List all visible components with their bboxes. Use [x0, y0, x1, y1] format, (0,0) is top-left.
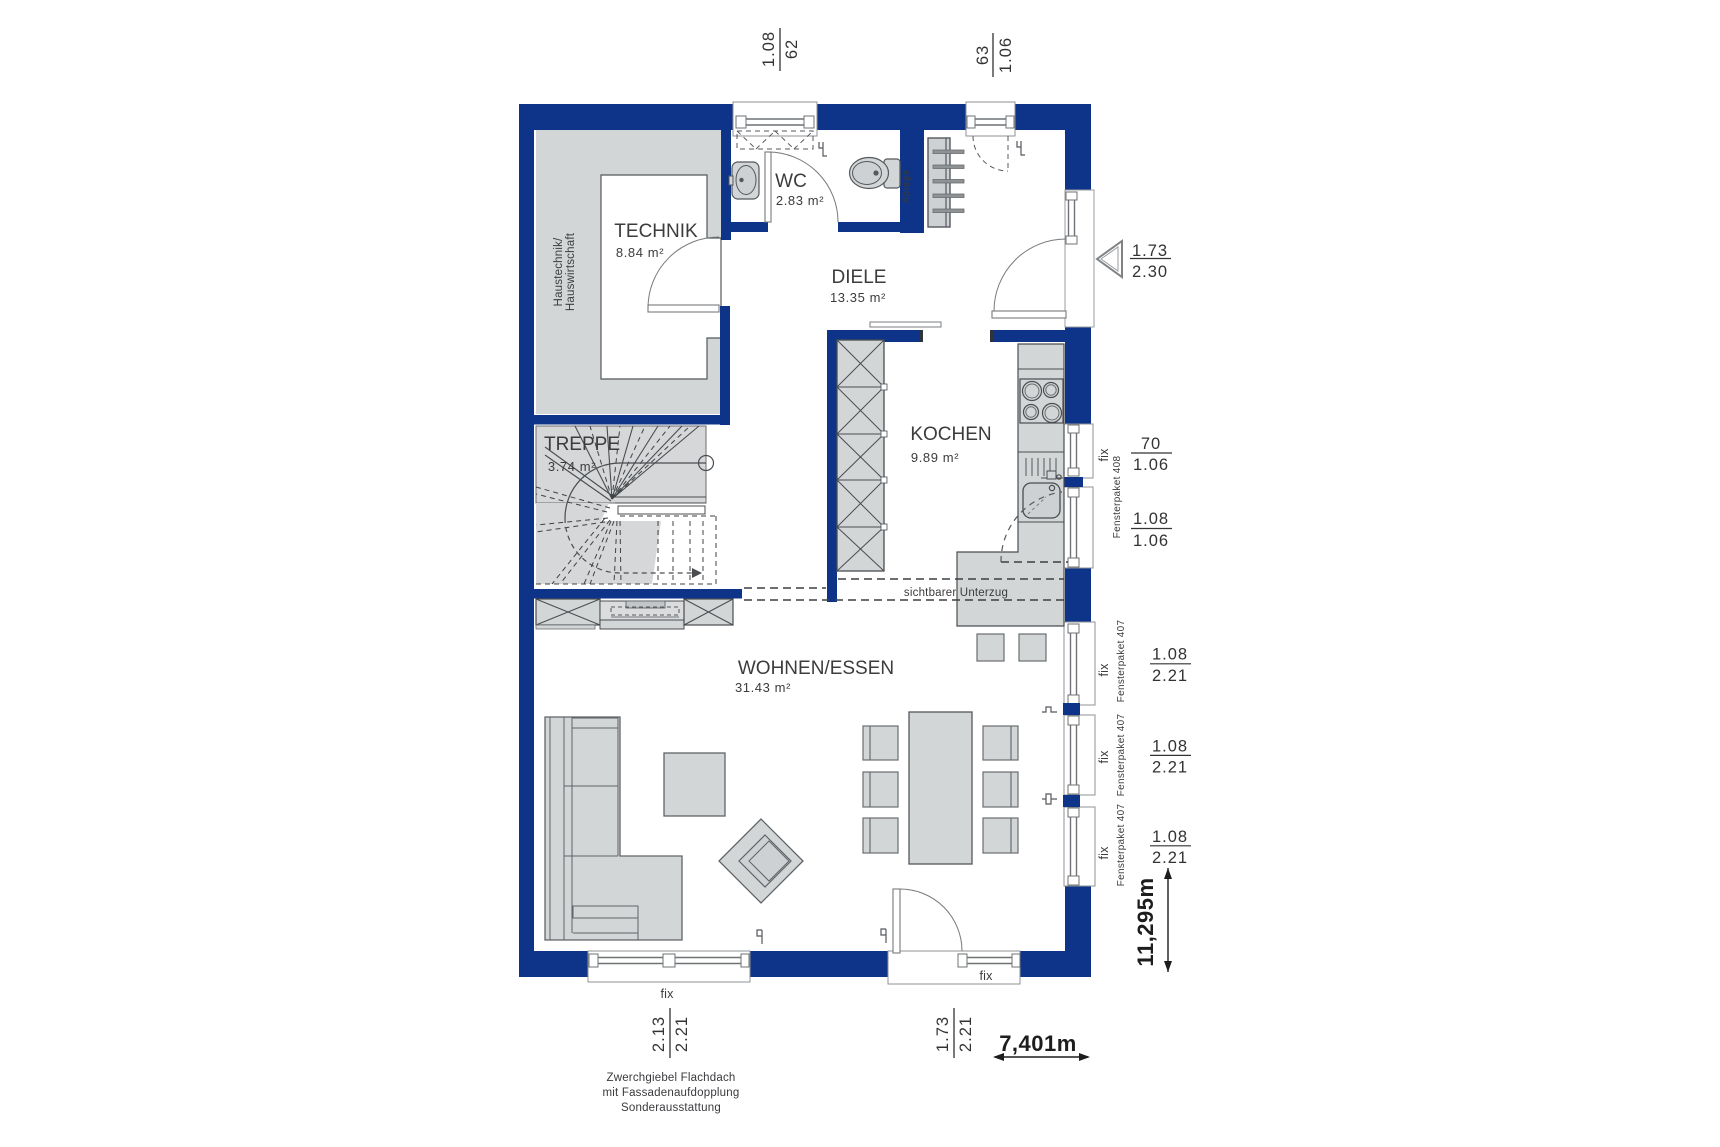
svg-text:2.30: 2.30: [1132, 263, 1168, 281]
svg-text:fix: fix: [1097, 750, 1111, 764]
svg-text:9.89 m²: 9.89 m²: [911, 450, 959, 465]
svg-text:62: 62: [783, 39, 801, 59]
svg-text:fix: fix: [1097, 448, 1111, 462]
svg-text:DIELE: DIELE: [832, 267, 887, 288]
svg-text:TREPPE: TREPPE: [544, 434, 620, 455]
svg-text:Fensterpaket 407: Fensterpaket 407: [1116, 620, 1127, 703]
svg-text:KOCHEN: KOCHEN: [910, 424, 991, 445]
svg-text:8.84 m²: 8.84 m²: [616, 245, 664, 260]
svg-text:3.74 m²: 3.74 m²: [548, 459, 596, 474]
svg-text:1.06: 1.06: [1133, 456, 1169, 474]
svg-text:2.21: 2.21: [957, 1016, 975, 1052]
svg-text:11,295m: 11,295m: [1133, 877, 1158, 966]
svg-text:Sonderausstattung: Sonderausstattung: [621, 1102, 721, 1114]
svg-text:2.21: 2.21: [673, 1016, 691, 1052]
svg-text:13.35 m²: 13.35 m²: [830, 290, 886, 305]
svg-text:Haustechnik/: Haustechnik/: [553, 237, 565, 306]
svg-text:Fensterpaket 408: Fensterpaket 408: [1112, 456, 1123, 539]
svg-text:WOHNEN/ESSEN: WOHNEN/ESSEN: [738, 658, 894, 679]
svg-text:WC: WC: [775, 171, 807, 192]
svg-text:Zwerchgiebel Flachdach: Zwerchgiebel Flachdach: [606, 1072, 735, 1084]
svg-text:7,401m: 7,401m: [999, 1031, 1077, 1056]
svg-text:sichtbarer Unterzug: sichtbarer Unterzug: [904, 587, 1008, 599]
svg-text:31.43 m²: 31.43 m²: [735, 680, 791, 695]
svg-text:70: 70: [1141, 435, 1161, 453]
svg-text:1.08: 1.08: [1152, 828, 1188, 846]
svg-text:1.06: 1.06: [997, 37, 1015, 73]
svg-text:1.08: 1.08: [1152, 646, 1188, 664]
svg-text:Hauswirtschaft: Hauswirtschaft: [565, 232, 577, 311]
svg-text:Fensterpaket 407: Fensterpaket 407: [1116, 714, 1127, 797]
svg-text:TECHNIK: TECHNIK: [614, 221, 698, 242]
svg-text:Fensterpaket 407: Fensterpaket 407: [1116, 804, 1127, 887]
svg-text:fix: fix: [1097, 663, 1111, 677]
svg-text:2.21: 2.21: [1152, 759, 1188, 777]
svg-text:63: 63: [974, 45, 992, 65]
svg-text:2.21: 2.21: [1152, 667, 1188, 685]
svg-text:fix: fix: [1097, 846, 1111, 860]
svg-text:fix: fix: [660, 987, 674, 1001]
svg-text:1.08: 1.08: [1133, 510, 1169, 528]
svg-text:1.73: 1.73: [1132, 242, 1168, 260]
svg-text:Ablage: Ablage: [901, 169, 911, 203]
svg-text:1.06: 1.06: [1133, 532, 1169, 550]
svg-text:mit Fassadenaufdopplung: mit Fassadenaufdopplung: [603, 1087, 740, 1099]
svg-text:1.08: 1.08: [760, 31, 778, 67]
svg-text:1.73: 1.73: [934, 1016, 952, 1052]
svg-text:2.83 m²: 2.83 m²: [776, 193, 824, 208]
svg-text:fix: fix: [979, 969, 993, 983]
svg-text:2.13: 2.13: [650, 1016, 668, 1052]
svg-text:2.21: 2.21: [1152, 849, 1188, 867]
svg-text:1.08: 1.08: [1152, 738, 1188, 756]
